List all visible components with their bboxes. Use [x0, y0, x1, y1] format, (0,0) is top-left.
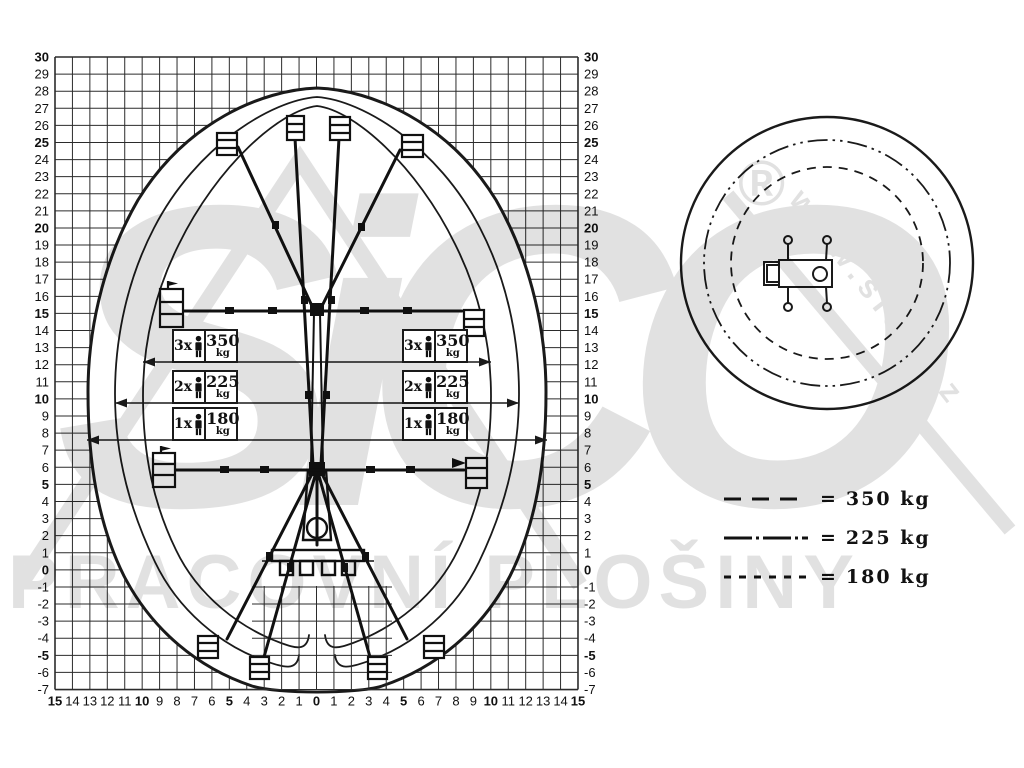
axis-tick-label: 7	[42, 443, 49, 458]
watermark-registered: ®	[738, 147, 785, 219]
axis-tick-label: -6	[584, 665, 596, 680]
axis-tick-label: 4	[42, 494, 49, 509]
legend-row-225: = 225 kg	[722, 525, 1002, 551]
short-dash-line-icon	[722, 573, 810, 581]
axis-tick-label: 16	[35, 289, 49, 304]
axis-tick-label: 12	[100, 694, 114, 709]
axis-tick-label: 28	[584, 84, 598, 99]
axis-tick-label: 5	[42, 477, 49, 492]
legend-equals: =	[820, 527, 836, 549]
axis-tick-label: 27	[35, 101, 49, 116]
legend-equals: =	[820, 488, 836, 510]
load-unit: kg	[446, 390, 460, 400]
legend-label: 180 kg	[846, 566, 931, 588]
load-value: 225	[206, 374, 239, 390]
axis-tick-label: 20	[35, 220, 49, 235]
axis-tick-label: 3	[42, 511, 49, 526]
axis-tick-label: 17	[35, 272, 49, 287]
axis-tick-label: 6	[417, 694, 424, 709]
load-value: 350	[206, 333, 239, 349]
axis-tick-label: -4	[584, 631, 596, 646]
axis-tick-label: 23	[35, 169, 49, 184]
load-box-left-225: 2x 225kg	[172, 370, 238, 404]
axis-tick-label: 0	[313, 694, 320, 709]
basket-icon	[250, 657, 269, 679]
dash-dot-line-icon	[722, 534, 810, 542]
load-unit: kg	[446, 427, 460, 437]
axis-tick-label: 13	[536, 694, 550, 709]
axis-tick-label: 2	[348, 694, 355, 709]
person-count: 3x	[404, 338, 422, 354]
axis-tick-label: 18	[35, 255, 49, 270]
person-icon	[423, 413, 434, 436]
load-unit: kg	[216, 390, 230, 400]
person-count: 1x	[404, 416, 422, 432]
axis-tick-label: 5	[400, 694, 407, 709]
axis-tick-label: 7	[435, 694, 442, 709]
axis-tick-label: 11	[118, 694, 132, 709]
axis-tick-label: 9	[156, 694, 163, 709]
axis-tick-label: 13	[83, 694, 97, 709]
axis-tick-label: -5	[37, 648, 49, 663]
axis-tick-label: 8	[452, 694, 459, 709]
legend-label: 350 kg	[846, 488, 931, 510]
load-value: 180	[436, 411, 469, 427]
axis-tick-label: 6	[208, 694, 215, 709]
axis-tick-label: 24	[35, 152, 49, 167]
axis-tick-label: 13	[35, 340, 49, 355]
person-icon	[193, 335, 204, 358]
axis-tick-label: 4	[243, 694, 250, 709]
person-count: 1x	[174, 416, 192, 432]
axis-tick-label: 10	[484, 694, 498, 709]
legend-row-180: = 180 kg	[722, 564, 1002, 590]
person-count: 3x	[174, 338, 192, 354]
person-icon	[423, 376, 434, 399]
axis-tick-label: 9	[42, 408, 49, 423]
axis-tick-label: 1	[330, 694, 337, 709]
axis-tick-label: -7	[584, 682, 596, 697]
load-box-right-225: 2x 225kg	[402, 370, 468, 404]
axis-tick-label: 10	[35, 391, 49, 406]
axis-tick-label: 29	[35, 67, 49, 82]
axis-tick-label: 19	[35, 238, 49, 253]
load-value: 225	[436, 374, 469, 390]
axis-tick-label: 21	[35, 203, 49, 218]
load-box-left-180: 1x 180kg	[172, 407, 238, 441]
axis-tick-label: 15	[48, 694, 62, 709]
load-box-right-350: 3x 350kg	[402, 329, 468, 363]
basket-icon	[198, 636, 218, 658]
person-icon	[423, 335, 434, 358]
person-count: 2x	[174, 379, 192, 395]
load-unit: kg	[446, 349, 460, 359]
person-icon	[193, 413, 204, 436]
axis-tick-label: 3	[261, 694, 268, 709]
axis-tick-label: 14	[65, 694, 79, 709]
axis-tick-label: 9	[470, 694, 477, 709]
load-box-left-350: 3x 350kg	[172, 329, 238, 363]
axis-tick-label: 30	[35, 50, 49, 65]
axis-tick-label: -6	[37, 665, 49, 680]
person-count: 2x	[404, 379, 422, 395]
working-envelope-diagram: 3030292928282727262625252424232322222121…	[0, 0, 1024, 768]
axis-tick-label: 3	[365, 694, 372, 709]
legend-label: 225 kg	[846, 527, 931, 549]
axis-tick-label: 22	[35, 186, 49, 201]
axis-tick-label: 8	[42, 426, 49, 441]
axis-tick-label: -4	[37, 631, 49, 646]
axis-tick-label: 12	[518, 694, 532, 709]
basket-icon	[424, 636, 444, 658]
axis-tick-label: 30	[584, 50, 598, 65]
long-dash-line-icon	[722, 495, 810, 503]
axis-tick-label: 11	[36, 374, 50, 389]
axis-tick-label: 1	[295, 694, 302, 709]
axis-tick-label: 7	[191, 694, 198, 709]
person-icon	[193, 376, 204, 399]
axis-tick-label: 12	[35, 357, 49, 372]
axis-tick-label: 14	[35, 323, 49, 338]
axis-tick-label: 14	[553, 694, 567, 709]
axis-tick-label: 29	[584, 67, 598, 82]
legend: = 350 kg = 225 kg = 180 kg	[722, 486, 1002, 603]
axis-tick-label: 25	[35, 135, 49, 150]
load-unit: kg	[216, 349, 230, 359]
load-unit: kg	[216, 427, 230, 437]
axis-tick-label: 8	[173, 694, 180, 709]
axis-tick-label: 5	[226, 694, 233, 709]
legend-equals: =	[820, 566, 836, 588]
axis-tick-label: 15	[571, 694, 585, 709]
axis-tick-label: 10	[135, 694, 149, 709]
load-value: 180	[206, 411, 239, 427]
axis-tick-label: 11	[502, 694, 516, 709]
load-value: 350	[436, 333, 469, 349]
axis-tick-label: 26	[35, 118, 49, 133]
axis-tick-label: 4	[383, 694, 390, 709]
axis-tick-label: 15	[35, 306, 49, 321]
basket-icon	[368, 657, 387, 679]
axis-tick-label: 2	[278, 694, 285, 709]
diagram-canvas: 3030292928282727262625252424232322222121…	[0, 0, 1024, 768]
load-box-right-180: 1x 180kg	[402, 407, 468, 441]
axis-tick-label: 6	[42, 460, 49, 475]
axis-tick-label: 27	[584, 101, 598, 116]
axis-tick-label: -5	[584, 648, 596, 663]
axis-tick-label: 28	[35, 84, 49, 99]
legend-row-350: = 350 kg	[722, 486, 1002, 512]
